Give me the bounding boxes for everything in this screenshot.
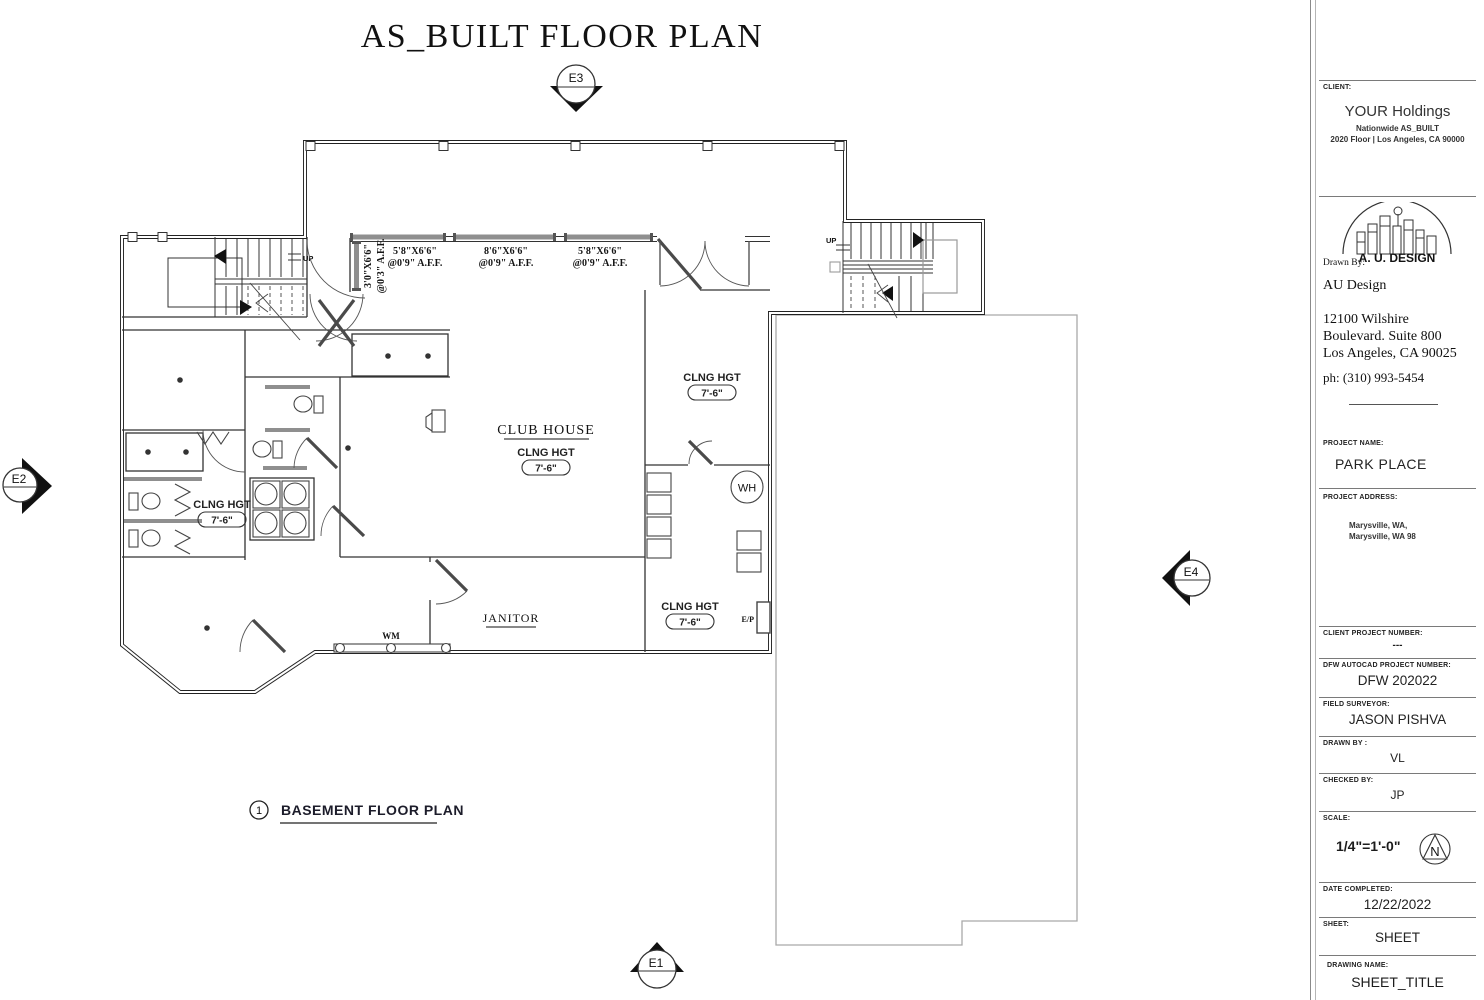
sink	[282, 481, 309, 508]
sheet-label: SHEET:	[1323, 921, 1349, 928]
logo-text: A. U. DESIGN	[1359, 251, 1436, 264]
window-label-1-size: 5'8"X6'6"	[393, 246, 437, 257]
date-completed: 12/22/2022	[1311, 897, 1484, 912]
drawing-name: SHEET_TITLE	[1311, 974, 1484, 990]
firm-logo: A. U. DESIGN	[1335, 202, 1459, 264]
svg-text:E4: E4	[1184, 565, 1199, 579]
clng-hgt-value: 7'-6"	[701, 389, 723, 400]
clng-hgt-label: CLNG HGT	[661, 601, 719, 613]
wh-label: WH	[738, 483, 756, 495]
stairs-up-label: UP	[303, 254, 313, 263]
project-address1: Marysville, WA,	[1349, 521, 1407, 530]
equipment-box	[737, 553, 761, 572]
firm-address3: Los Angeles, CA 90025	[1323, 346, 1457, 362]
window-label-3-size: 5'8"X6'6"	[578, 246, 622, 257]
floor-plan-drawing: AS_BUILT FLOOR PLAN	[0, 0, 1310, 1000]
patio-outline	[776, 315, 1077, 945]
window-label-vertical-size: 3'0"X6'6"	[363, 244, 374, 288]
field-surveyor-label: FIELD SURVEYOR:	[1323, 701, 1390, 708]
equipment-box	[647, 473, 671, 492]
window-label-1-mount: @0'9" A.F.F.	[388, 258, 443, 269]
stairs-up-label: UP	[826, 236, 836, 245]
equipment-box	[647, 539, 671, 558]
field-surveyor: JASON PISHVA	[1311, 712, 1484, 727]
title-block-inner-border	[1315, 0, 1316, 1000]
firm-name: AU Design	[1323, 278, 1386, 294]
client-line2: Nationwide AS_BUILT	[1311, 124, 1484, 133]
washer-unit	[334, 644, 451, 653]
client-name: YOUR Holdings	[1311, 103, 1484, 120]
client-line3: 2020 Floor | Los Angeles, CA 90000	[1311, 135, 1484, 144]
toilet	[253, 441, 282, 458]
svg-text:N: N	[1430, 844, 1439, 859]
drawn-by-label: DRAWN BY :	[1323, 740, 1367, 747]
sink	[282, 510, 309, 537]
clng-hgt-label: CLNG HGT	[683, 372, 741, 384]
equipment-box	[737, 531, 761, 550]
date-completed-label: DATE COMPLETED:	[1323, 886, 1393, 893]
scale-value: 1/4"=1'-0"	[1336, 838, 1400, 854]
checked-by-label: CHECKED BY:	[1323, 777, 1373, 784]
client-label: CLIENT:	[1323, 84, 1351, 91]
clng-hgt-value: 7'-6"	[211, 516, 233, 527]
clng-hgt-value: 7'-6"	[679, 618, 701, 629]
clng-hgt-label: CLNG HGT	[193, 499, 251, 511]
project-address2: Marysville, WA 98	[1349, 532, 1416, 541]
sink	[253, 481, 280, 508]
club-house-label: CLUB HOUSE	[497, 423, 595, 438]
window-label-2-mount: @0'9" A.F.F.	[479, 258, 534, 269]
clng-hgt-value: 7'-6"	[535, 464, 557, 475]
building-outer-walls	[122, 142, 983, 692]
elevation-marker-e2: E2	[3, 458, 52, 514]
page-title: AS_BUILT FLOOR PLAN	[361, 18, 764, 55]
project-address-label: PROJECT ADDRESS:	[1323, 494, 1398, 501]
window-label-2-size: 8'6"X6'6"	[484, 246, 528, 257]
checked-by-value: JP	[1311, 788, 1484, 802]
title-block: CLIENT: YOUR Holdings Nationwide AS_BUIL…	[1310, 0, 1484, 1000]
drawing-name-label: DRAWING NAME:	[1327, 962, 1388, 969]
drawn-by-value: VL	[1311, 751, 1484, 765]
clng-hgt-label: CLNG HGT	[517, 447, 575, 459]
client-project-number: ---	[1311, 640, 1484, 651]
equipment-box	[647, 517, 671, 536]
project-name-label: PROJECT NAME:	[1323, 440, 1384, 447]
elevation-marker-e3: E3	[550, 65, 603, 112]
north-arrow-icon: N	[1416, 830, 1454, 868]
sheet-value: SHEET	[1311, 930, 1484, 945]
plan-caption: 1 BASEMENT FLOOR PLAN	[250, 801, 464, 823]
window-label-3-mount: @0'9" A.F.F.	[573, 258, 628, 269]
ep-label: E/P	[742, 615, 755, 624]
svg-text:E1: E1	[649, 956, 664, 970]
electrical-panel-box	[757, 602, 770, 633]
scale-label: SCALE:	[1323, 815, 1350, 822]
equipment-box	[647, 495, 671, 514]
drawn-by-caption: Drawn By:	[1323, 258, 1365, 268]
autocad-number-label: DFW AUTOCAD PROJECT NUMBER:	[1323, 662, 1451, 669]
janitor-label: JANITOR	[483, 611, 540, 625]
firm-address2: Boulevard. Suite 800	[1323, 329, 1442, 345]
window-label-vertical-mount: @0'3" A.F.F.	[376, 238, 387, 293]
elevation-marker-e4: E4	[1162, 550, 1210, 606]
project-name: PARK PLACE	[1335, 456, 1427, 472]
firm-address1: 12100 Wilshire	[1323, 312, 1409, 328]
sink	[253, 510, 280, 537]
svg-text:E2: E2	[12, 472, 27, 486]
caption-number: 1	[256, 805, 262, 817]
caption-text: BASEMENT FLOOR PLAN	[281, 802, 464, 818]
toilet	[294, 396, 323, 413]
elevation-marker-e1: E1	[630, 942, 684, 988]
svg-text:E3: E3	[569, 71, 584, 85]
client-project-number-label: CLIENT PROJECT NUMBER:	[1323, 630, 1423, 637]
wm-label: WM	[382, 631, 400, 641]
autocad-number: DFW 202022	[1311, 673, 1484, 688]
sheet: AS_BUILT FLOOR PLAN	[0, 0, 1484, 1000]
firm-phone: ph: (310) 993-5454	[1323, 370, 1424, 386]
